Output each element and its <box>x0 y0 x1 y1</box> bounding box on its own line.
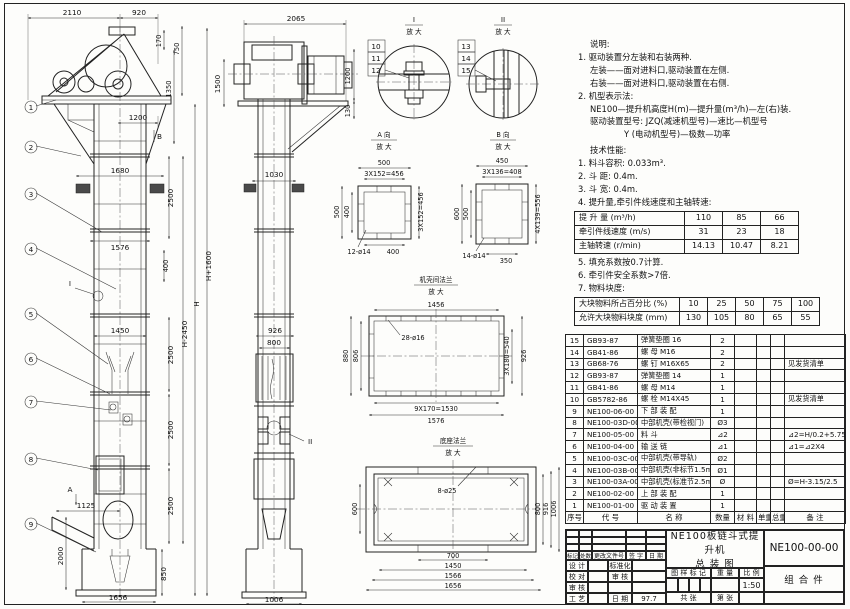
table-cell: 1 <box>711 488 735 500</box>
dim-va-500t: 500 <box>378 159 391 167</box>
dim-ba-800: 800 <box>534 503 542 516</box>
balloons-10-11-12: 10 11 12 <box>368 40 409 78</box>
svg-text:14: 14 <box>461 54 471 63</box>
table-cell <box>757 417 771 429</box>
table-cell: 中部机壳(带导轨) <box>638 452 711 464</box>
table-cell: 10 <box>566 393 584 405</box>
dim-va-400b: 400 <box>387 248 400 256</box>
table-cell: 中部机壳(非标节1.5m,1m) <box>638 464 711 476</box>
view-b-title: B 向 <box>496 130 509 139</box>
table-cell: NE100-05-00 <box>584 429 638 441</box>
svg-text:2500: 2500 <box>166 420 175 439</box>
svg-text:1: 1 <box>29 103 34 112</box>
dim-front-920: 920 <box>132 8 146 17</box>
table-row: 5NE100-03C-00中部机壳(带导轨)Ø2 <box>566 452 846 464</box>
table-cell: NE100-03B-00 <box>584 464 638 476</box>
table-row: 提 升 量 (m³/h)1108566 <box>575 211 799 225</box>
table-cell <box>771 346 785 358</box>
base-enlarged: 放 大 <box>445 448 461 457</box>
detail-i: I 放 大 10 11 12 <box>368 15 452 120</box>
note-line: 右装——面对进料口,驱动装置在右侧. <box>570 77 842 90</box>
table-cell: 14 <box>566 346 584 358</box>
table-cell <box>771 335 785 347</box>
table-row: 11GB41-86螺 母 M141 <box>566 382 846 394</box>
table-row: 15GB93-87弹簧垫圈 162 <box>566 335 846 347</box>
notes-and-specs: 说明: 1. 驱动装置分左装和右装两种. 左装——面对进料口,驱动装置在左侧. … <box>570 38 842 328</box>
svg-text:11: 11 <box>371 54 380 63</box>
dim-vb-600: 600 <box>453 208 461 221</box>
table-cell: 75 <box>764 297 792 311</box>
table-cell <box>757 441 771 453</box>
table-cell <box>735 464 757 476</box>
table-cell: NE100-04-00 <box>584 441 638 453</box>
dim-ba-1656: 1656 <box>445 582 462 590</box>
drawing-canvas: 2110 920 1200 <box>6 4 562 605</box>
table-cell: 23 <box>723 225 761 239</box>
table-row: 9NE100-06-00下 部 装 配1 <box>566 405 846 417</box>
dim-front-1450: 1450 <box>111 326 130 335</box>
dim-fl-holes: 28-ø16 <box>401 334 424 342</box>
svg-text:8: 8 <box>29 455 34 464</box>
table-cell: 1 <box>711 500 735 512</box>
detail-ii-title: II <box>501 15 505 24</box>
dim-fl-1576: 1576 <box>428 417 445 425</box>
dim-va-holes: 12-ø14 <box>347 248 370 256</box>
table-cell: ⊿1=⊿2X4 <box>785 441 846 453</box>
table-cell: NE100-03D-00 <box>584 417 638 429</box>
dim-va-456t: 3X152=456 <box>364 170 403 178</box>
role-label: 审 核 <box>566 582 588 593</box>
table-cell <box>735 370 757 382</box>
dim-side-1006: 1006 <box>265 595 284 604</box>
svg-text:2500: 2500 <box>166 345 175 364</box>
flange-enlarged: 放 大 <box>428 287 444 296</box>
table-cell: 1 <box>711 393 735 405</box>
table-cell: NE100-02-00 <box>584 488 638 500</box>
role-label: 审 核 <box>608 571 632 582</box>
detail-ii: II 放 大 13 14 15 <box>458 15 540 120</box>
title-block: 标记 处数 更改文件号 签 字 日 期 设 计 标准化 校 对 审 核 审 核 … <box>565 529 845 605</box>
table-cell <box>771 488 785 500</box>
view-a-title: A 向 <box>377 130 390 139</box>
detail-i-title: I <box>413 15 415 24</box>
dim-ba-916: 916 <box>542 503 550 516</box>
table-row: 大块物料所占百分比 (%)10255075100 <box>575 297 820 311</box>
table-cell: 1 <box>566 500 584 512</box>
table-cell: 14.13 <box>685 239 723 253</box>
rev-header: 更改文件号 <box>592 551 626 560</box>
dim-fl-880: 880 <box>342 350 350 363</box>
table-cell: 65 <box>764 311 792 325</box>
dim-front-h: H <box>192 301 201 307</box>
table-cell <box>735 358 757 370</box>
casing-flange-detail: 机壳间法兰 放 大 1456 880 806 3X180=540 926 9X1… <box>342 275 528 425</box>
stamp-header: 比 例 <box>739 568 764 578</box>
dim-front-1350: 1350 <box>165 81 173 98</box>
drawing-sheet: 2110 920 1200 <box>0 0 850 609</box>
dim-va-500l: 500 <box>333 206 341 219</box>
tech-item: 7. 物料块度: <box>570 282 842 295</box>
svg-text:13: 13 <box>461 42 471 51</box>
dim-side-1500: 1500 <box>213 74 222 93</box>
table-cell <box>735 452 757 464</box>
dim-vb-556: 4X139=556 <box>534 194 542 233</box>
table-cell <box>785 488 846 500</box>
dim-front-h1600: H+1600 <box>204 251 213 282</box>
dim-front-2110: 2110 <box>63 8 82 17</box>
table-row: 主轴转速 (r/min)14.1310.478.21 <box>575 239 799 253</box>
marker-view-b: B <box>157 132 162 141</box>
dim-vb-408: 3X136=408 <box>482 168 521 176</box>
front-elevation-view: 2110 920 1200 <box>25 8 213 602</box>
table-cell: 输 送 链 <box>638 441 711 453</box>
table-cell: Ø3 <box>711 417 735 429</box>
note-line: 2. 机型表示法: <box>570 90 842 103</box>
table-cell <box>771 382 785 394</box>
dim-vb-holes: 14-ø14 <box>462 252 485 260</box>
table-cell <box>785 417 846 429</box>
dim-fl-540: 3X180=540 <box>503 336 511 375</box>
table-row: 牵引件线速度 (m/s)312318 <box>575 225 799 239</box>
table-cell <box>785 452 846 464</box>
svg-text:2500: 2500 <box>166 496 175 515</box>
lump-size-table: 大块物料所占百分比 (%)10255075100允许大块物料块度 (mm)130… <box>574 297 820 326</box>
dim-vb-350: 350 <box>500 257 513 265</box>
dim-front-2500-group: 2500 2500 2500 2500 <box>166 156 175 544</box>
view-b-enlarged: 放 大 <box>495 142 511 151</box>
scale-value: 1:50 <box>739 578 764 592</box>
table-cell: GB41-86 <box>584 382 638 394</box>
dim-vb-500: 500 <box>462 208 470 221</box>
table-cell: 牵引件线速度 (m/s) <box>575 225 685 239</box>
dim-fl-926: 926 <box>520 350 528 363</box>
table-cell: 9 <box>566 405 584 417</box>
table-cell: 80 <box>736 311 764 325</box>
note-line: 左装——面对进料口,驱动装置在左侧. <box>570 64 842 77</box>
table-cell: 130 <box>680 311 708 325</box>
table-cell: GB93-87 <box>584 335 638 347</box>
table-cell <box>771 476 785 488</box>
rev-header: 标记 <box>566 551 579 560</box>
table-cell <box>771 370 785 382</box>
dim-fl-1456: 1456 <box>428 301 445 309</box>
table-cell <box>735 500 757 512</box>
sheet-number: 第 张 <box>711 592 739 604</box>
table-cell: NE100-01-00 <box>584 500 638 512</box>
bom-header-cell: 序号 <box>566 511 584 523</box>
table-cell <box>785 346 846 358</box>
svg-text:6: 6 <box>29 355 34 364</box>
dim-vb-450: 450 <box>496 157 509 165</box>
table-cell <box>757 346 771 358</box>
table-cell: 1 <box>711 405 735 417</box>
svg-text:5: 5 <box>29 310 34 319</box>
role-label <box>608 582 632 593</box>
dim-fl-806: 806 <box>352 350 360 363</box>
svg-text:7: 7 <box>29 398 34 407</box>
table-cell <box>757 393 771 405</box>
dim-ba-700: 700 <box>447 552 460 560</box>
table-cell: 螺 母 M14 <box>638 382 711 394</box>
table-cell: ⊿2 <box>711 429 735 441</box>
table-cell <box>785 370 846 382</box>
table-cell: ⊿2=H/0.2+5.75 <box>785 429 846 441</box>
bill-of-materials: 15GB93-87弹簧垫圈 16214GB41-86螺 母 M16213GB68… <box>565 334 846 524</box>
table-cell: Ø1 <box>711 464 735 476</box>
tech-item: 3. 斗 宽: 0.4m. <box>570 183 842 196</box>
dim-ba-holes: 8-ø25 <box>438 487 457 495</box>
table-cell: 提 升 量 (m³/h) <box>575 211 685 225</box>
detail-i-enlarged: 放 大 <box>406 27 422 36</box>
table-cell <box>785 335 846 347</box>
table-cell: 4 <box>566 464 584 476</box>
table-cell: 15 <box>566 335 584 347</box>
role-label: 日 期 <box>608 593 632 604</box>
table-cell <box>735 488 757 500</box>
table-cell: 12 <box>566 370 584 382</box>
table-cell <box>735 335 757 347</box>
date-value: 97.7 <box>632 593 666 604</box>
dim-front-pitch: 400 <box>162 260 170 273</box>
table-cell: 见发货清单 <box>785 393 846 405</box>
rev-header: 签 字 <box>626 551 646 560</box>
tech-item: 1. 料斗容积: 0.033m³. <box>570 157 842 170</box>
tech-item: 2. 斗 距: 0.4m. <box>570 170 842 183</box>
table-cell <box>757 488 771 500</box>
drawing-number: NE100-00-00 <box>764 530 844 566</box>
rev-header: 日 期 <box>646 551 666 560</box>
svg-text:12: 12 <box>371 66 380 75</box>
marker-detail-ii: II <box>308 437 312 446</box>
table-cell: 18 <box>761 225 799 239</box>
view-a-detail: A 向 放 大 500 3X152=456 500 400 3X152=456 … <box>333 130 425 256</box>
table-cell: 大块物料所占百分比 (%) <box>575 297 680 311</box>
table-cell <box>785 464 846 476</box>
table-cell: 螺 钉 M16X65 <box>638 358 711 370</box>
table-cell: 31 <box>685 225 723 239</box>
table-cell: 下 部 装 配 <box>638 405 711 417</box>
table-cell: 105 <box>708 311 736 325</box>
table-row: 7NE100-05-00料 斗⊿2⊿2=H/0.2+5.75 <box>566 429 846 441</box>
sheet-total: 共 张 <box>666 592 711 604</box>
table-cell: GB93-87 <box>584 370 638 382</box>
table-cell <box>735 441 757 453</box>
table-cell <box>757 429 771 441</box>
role-label: 校 对 <box>566 571 588 582</box>
base-flange-detail: 底座法兰 放 大 8-ø25 600 800 916 1006 700 1450 <box>351 436 559 590</box>
table-row: 3NE100-03A-00中部机壳(标准节2.5m)ØØ=H-3.15/2.5 <box>566 476 846 488</box>
table-row: 允许大块物料块度 (mm)130105806555 <box>575 311 820 325</box>
marker-view-a: A <box>68 485 73 494</box>
table-cell <box>757 464 771 476</box>
table-cell: NE100-03A-00 <box>584 476 638 488</box>
table-cell: 25 <box>708 297 736 311</box>
dim-ba-600: 600 <box>351 503 359 516</box>
table-row: 6NE100-04-00输 送 链⊿1⊿1=⊿2X4 <box>566 441 846 453</box>
table-cell: 66 <box>761 211 799 225</box>
table-cell: 2 <box>711 358 735 370</box>
table-cell <box>735 382 757 394</box>
table-cell <box>771 441 785 453</box>
speed-table: 提 升 量 (m³/h)1108566牵引件线速度 (m/s)312318主轴转… <box>574 211 799 254</box>
side-elevation-view: 2065 1500 1200 130 <box>213 14 358 604</box>
table-cell <box>757 358 771 370</box>
table-cell: 55 <box>792 311 820 325</box>
dim-side-1030: 1030 <box>265 170 284 179</box>
table-cell <box>771 500 785 512</box>
table-cell: 弹簧垫圈 16 <box>638 335 711 347</box>
rev-header: 处数 <box>579 551 592 560</box>
dim-side-130: 130 <box>344 105 352 118</box>
svg-text:4: 4 <box>29 245 34 254</box>
svg-text:2500: 2500 <box>166 188 175 207</box>
table-row: 2NE100-02-00上 部 装 配1 <box>566 488 846 500</box>
dim-side-1200: 1200 <box>344 68 352 85</box>
table-cell: 10 <box>680 297 708 311</box>
dim-front-170: 170 <box>155 35 163 48</box>
table-cell <box>735 476 757 488</box>
table-row: 1NE100-01-00驱 动 装 置1 <box>566 500 846 512</box>
table-cell: GB41-86 <box>584 346 638 358</box>
bom-header-cell: 单重 <box>757 511 771 523</box>
table-cell: NE100-03C-00 <box>584 452 638 464</box>
table-cell <box>735 405 757 417</box>
dim-front-2000: 2000 <box>56 546 65 565</box>
table-cell <box>771 452 785 464</box>
role-label: 标准化 <box>608 560 632 571</box>
dim-fl-1530: 9X170=1530 <box>414 405 458 413</box>
part-type: 组 合 件 <box>764 566 844 592</box>
table-cell: 8.21 <box>761 239 799 253</box>
dim-ba-1006: 1006 <box>550 501 558 518</box>
bom-header-cell: 数量 <box>711 511 735 523</box>
dim-side-2065: 2065 <box>287 14 306 23</box>
table-cell <box>771 429 785 441</box>
table-cell: 上 部 装 配 <box>638 488 711 500</box>
dim-va-400l: 400 <box>343 206 351 219</box>
bom-header-cell: 代 号 <box>584 511 638 523</box>
table-cell: 100 <box>792 297 820 311</box>
table-cell: 弹簧垫圈 14 <box>638 370 711 382</box>
table-cell: 中部机壳(标准节2.5m) <box>638 476 711 488</box>
bom-header-cell: 备 注 <box>785 511 846 523</box>
table-cell: 13 <box>566 358 584 370</box>
table-row: 14GB41-86螺 母 M162 <box>566 346 846 358</box>
table-cell <box>771 405 785 417</box>
table-cell: 11 <box>566 382 584 394</box>
table-cell <box>757 335 771 347</box>
table-row: 8NE100-03D-00中部机壳(带检视门)Ø3 <box>566 417 846 429</box>
table-cell: NE100-06-00 <box>584 405 638 417</box>
table-cell: 7 <box>566 429 584 441</box>
tech-item: 5. 填充系数按0.7计算. <box>570 256 842 269</box>
table-row: 4NE100-03B-00中部机壳(非标节1.5m,1m)Ø1 <box>566 464 846 476</box>
table-cell: 螺 栓 M14X45 <box>638 393 711 405</box>
table-cell <box>757 382 771 394</box>
table-cell: 8 <box>566 417 584 429</box>
table-cell: GB5782-86 <box>584 393 638 405</box>
tech-item: 4. 提升量,牵引件线速度和主轴转速: <box>570 196 842 209</box>
table-cell <box>757 500 771 512</box>
table-cell: 6 <box>566 441 584 453</box>
note-line: 1. 驱动装置分左装和右装两种. <box>570 51 842 64</box>
view-a-enlarged: 放 大 <box>376 142 392 151</box>
table-cell <box>785 405 846 417</box>
drawing-subtitle: 总 装 图 <box>695 556 735 568</box>
table-cell: 中部机壳(带检视门) <box>638 417 711 429</box>
table-cell: 5 <box>566 452 584 464</box>
table-cell <box>735 346 757 358</box>
table-row: 10GB5782-86螺 栓 M14X451见发货清单 <box>566 393 846 405</box>
marker-detail-i: I <box>69 279 71 288</box>
note-line: Y (电动机型号)—极数—功率 <box>570 128 842 141</box>
table-row: 12GB93-87弹簧垫圈 141 <box>566 370 846 382</box>
table-cell: 驱 动 装 置 <box>638 500 711 512</box>
bom-header-cell: 总重 <box>771 511 785 523</box>
svg-text:2: 2 <box>29 143 34 152</box>
table-cell: ⊿1 <box>711 441 735 453</box>
note-line: NE100—提升机高度H(m)—提升量(m³/h)—左(右)装. <box>570 103 842 116</box>
table-cell <box>785 500 846 512</box>
dim-front-1125: 1125 <box>77 501 96 510</box>
table-cell <box>771 464 785 476</box>
dim-ba-1566: 1566 <box>445 572 462 580</box>
table-cell <box>735 393 757 405</box>
table-cell <box>771 393 785 405</box>
svg-text:15: 15 <box>461 66 470 75</box>
tech-item: 6. 牵引件安全系数>7倍. <box>570 269 842 282</box>
table-cell <box>757 405 771 417</box>
table-cell: 见发货清单 <box>785 358 846 370</box>
dim-front-1200: 1200 <box>129 113 148 122</box>
dim-side-926: 926 <box>268 326 282 335</box>
table-cell: 50 <box>736 297 764 311</box>
table-cell: 允许大块物料块度 (mm) <box>575 311 680 325</box>
flange-title: 机壳间法兰 <box>420 275 453 284</box>
table-cell: 主轴转速 (r/min) <box>575 239 685 253</box>
table-cell: 2 <box>711 346 735 358</box>
dim-ba-1450: 1450 <box>445 562 462 570</box>
bom-header-row: 序号代 号名 称数量材 料单重总重备 注 <box>566 511 846 523</box>
table-cell <box>757 476 771 488</box>
table-cell <box>757 370 771 382</box>
balloons-13-14-15: 13 14 15 <box>458 40 496 81</box>
table-cell: Ø2 <box>711 452 735 464</box>
table-cell <box>735 429 757 441</box>
table-cell: 3 <box>566 476 584 488</box>
bom-header-cell: 名 称 <box>638 511 711 523</box>
table-cell: 2 <box>566 488 584 500</box>
table-cell: 螺 母 M16 <box>638 346 711 358</box>
dim-front-1576: 1576 <box>111 243 130 252</box>
table-cell <box>785 382 846 394</box>
svg-text:9: 9 <box>29 520 34 529</box>
notes-heading: 说明: <box>570 38 842 51</box>
table-cell <box>735 417 757 429</box>
drawing-product-name: NE100板链斗式提升机 <box>667 530 763 556</box>
dim-front-h-2450: H-2450 <box>180 320 189 347</box>
table-cell: 2 <box>711 335 735 347</box>
dim-front-850: 850 <box>159 567 168 581</box>
dim-side-800: 800 <box>267 338 281 347</box>
note-line: 驱动装置型号: JZQ(减速机型号)—速比—机型号 <box>570 115 842 128</box>
table-cell: 1 <box>711 370 735 382</box>
view-b-detail: B 向 放 大 450 3X136=408 600 500 4X139=556 … <box>453 130 542 265</box>
base-title: 底座法兰 <box>440 436 467 445</box>
table-cell: GB68-76 <box>584 358 638 370</box>
bom-header-cell: 材 料 <box>735 511 757 523</box>
table-cell: Ø <box>711 476 735 488</box>
